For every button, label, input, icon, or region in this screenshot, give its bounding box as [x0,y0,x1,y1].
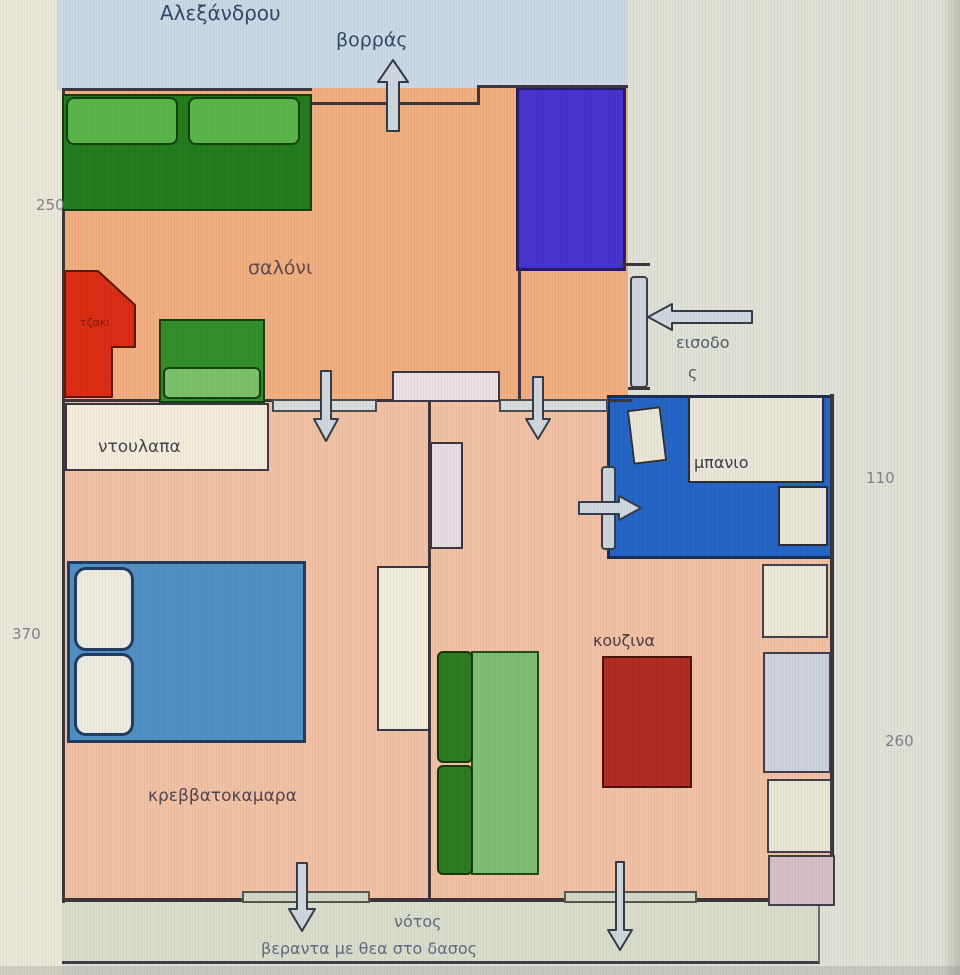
street-label: Αλεξάνδρου [160,2,281,24]
kitchen-appliance-3 [767,779,832,853]
south-label: νότος [394,913,442,931]
bed-pillow-bottom [74,653,134,736]
armchair-cushion [163,367,261,399]
dimension-west: 370 [12,626,41,643]
wall-south [62,898,834,902]
north-label: βορράς [336,30,408,51]
entrance-label-line1: εισοδο [676,334,730,352]
hall-door-lintel [392,371,500,402]
entrance-label-line2: ς [688,364,697,382]
bathroom-label: μπανιο [694,454,749,472]
hall-door-arrow-icon [313,369,339,443]
living-room-label: σαλόνι [248,258,312,279]
fireplace-shape [62,267,138,401]
dimension-east-upper: 110 [866,470,895,487]
fireplace-label: τζακι [80,317,110,329]
veranda-door-arrow-2-icon [606,860,634,952]
veranda-label: βεραντα με θεα στο δασος [261,940,477,958]
kitchen-counter [602,656,692,788]
bed-pillow-top [74,567,134,651]
hall-door-arrow-2-icon [525,375,551,441]
photo-edge-shadow-bottom [0,966,960,975]
kitchen-appliance-1 [762,564,828,638]
photo-edge-shadow-right [942,0,960,975]
north-arrow-icon [377,58,409,132]
floor-plan: Αλεξάνδρου βορράς σαλόνι τζακι εισοδο ς … [0,0,960,975]
dining-bench-seat [471,651,539,875]
wall-step [477,85,480,105]
page-left-margin [0,0,62,975]
kitchen-appliance-2 [763,652,831,773]
wardrobe-label: ντουλαπα [98,438,181,457]
veranda-door-arrow-icon [288,861,316,933]
tall-cabinet [377,566,430,731]
wall-top-right [477,85,628,88]
bedroom-label: κρεββατοκαμαρα [148,787,297,806]
bathroom-sink [627,406,667,465]
dining-bench-back-top [437,651,473,763]
sofa-cushion-left [66,97,178,145]
entrance-door [630,276,648,388]
wall-stub-entry-top [622,263,650,266]
hall-door-leaf [430,442,463,549]
bathroom-toilet [778,486,828,546]
hall-threshold-right [499,399,608,412]
wall-top-left [62,88,312,91]
closet-block [516,87,626,271]
dimension-north: 250 [36,197,65,214]
kitchen-appliance-4 [768,855,835,906]
bathroom-door-arrow-icon [577,494,643,522]
sofa-cushion-right [188,97,300,145]
kitchen-label: κουζινα [593,632,655,650]
dining-bench-back-bottom [437,765,473,875]
entrance-arrow-icon [646,302,754,332]
dimension-east-lower: 260 [885,733,914,750]
wall-entry-hall [518,270,521,401]
